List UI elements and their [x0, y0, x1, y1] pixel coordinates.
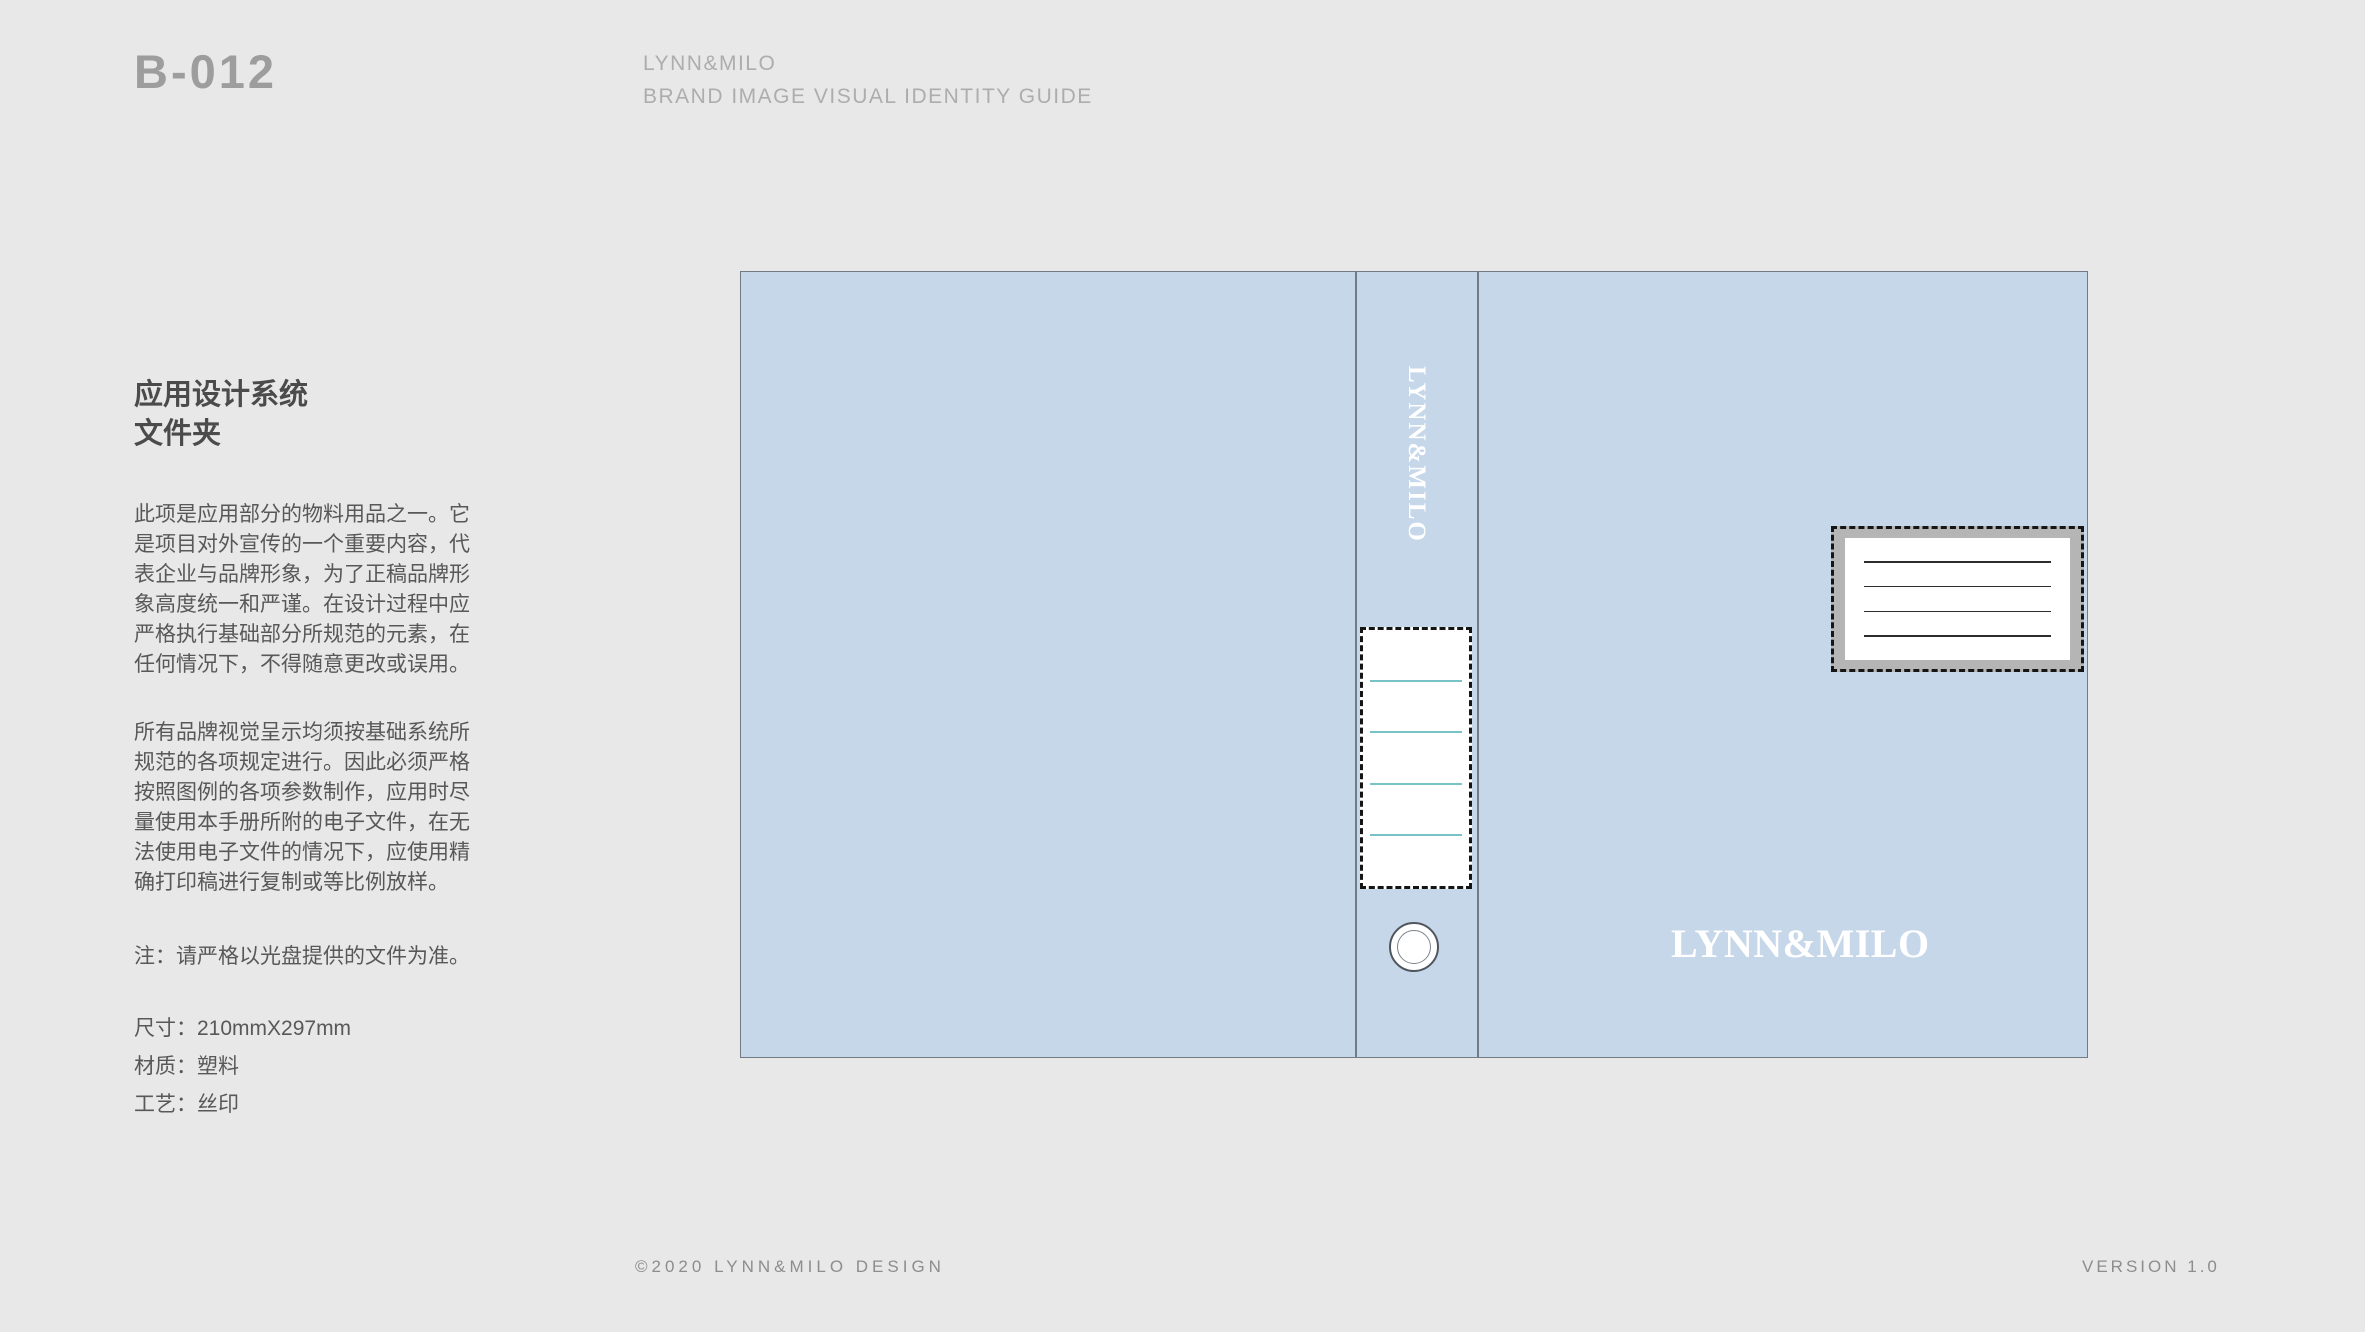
spec-size: 尺寸：210mmX297mm [134, 1010, 554, 1048]
spine-label-line [1370, 680, 1462, 682]
spine-label-line [1370, 783, 1462, 785]
footer-version: VERSION 1.0 [2082, 1257, 2220, 1277]
spine-label-line [1370, 834, 1462, 836]
front-label-line [1864, 561, 2051, 563]
section-title: 应用设计系统 文件夹 [134, 376, 470, 454]
front-cover-logo: LYNN&MILO [1671, 920, 1893, 967]
header-brand-name: LYNN&MILO [643, 52, 776, 76]
grommet-inner-ring [1397, 930, 1431, 964]
front-label-line [1864, 611, 2051, 613]
spine-logo-text: LYNN&MILO [1402, 366, 1430, 543]
footer-copyright: ©2020 LYNN&MILO DESIGN [635, 1257, 945, 1277]
front-cover-label-card [1845, 538, 2070, 660]
page-code: B-012 [134, 44, 277, 99]
spec-process: 工艺：丝印 [134, 1086, 554, 1124]
spec-list: 尺寸：210mmX297mm 材质：塑料 工艺：丝印 [134, 1010, 554, 1124]
spec-size-label: 尺寸： [134, 1017, 197, 1040]
front-label-line [1864, 586, 2051, 588]
grommet-ring [1389, 922, 1439, 972]
section-title-line2: 文件夹 [134, 415, 470, 454]
spec-material-label: 材质： [134, 1055, 197, 1078]
front-cover-label [1831, 526, 2084, 672]
disc-note: 注：请严格以光盘提供的文件为准。 [134, 940, 554, 970]
spec-size-value: 210mmX297mm [197, 1017, 351, 1040]
spine-logo: LYNN&MILO [1355, 358, 1477, 550]
spine-fold-line-right [1477, 272, 1479, 1057]
spec-material: 材质：塑料 [134, 1048, 554, 1086]
front-label-line [1864, 635, 2051, 637]
spec-process-label: 工艺： [134, 1093, 197, 1116]
spec-process-value: 丝印 [197, 1093, 239, 1116]
header-guide-subtitle: BRAND IMAGE VISUAL IDENTITY GUIDE [643, 85, 1093, 109]
spine-label-line [1370, 731, 1462, 733]
folder-mockup: LYNN&MILO LYNN&MILO [740, 271, 2088, 1058]
description-paragraph-2: 所有品牌视觉呈示均须按基础系统所规范的各项规定进行。因此必须严格按照图例的各项参… [134, 718, 470, 898]
description-paragraph-1: 此项是应用部分的物料用品之一。它是项目对外宣传的一个重要内容，代表企业与品牌形象… [134, 500, 470, 680]
spine-index-label [1360, 627, 1472, 889]
section-title-line1: 应用设计系统 [134, 376, 470, 415]
spec-material-value: 塑料 [197, 1055, 239, 1078]
